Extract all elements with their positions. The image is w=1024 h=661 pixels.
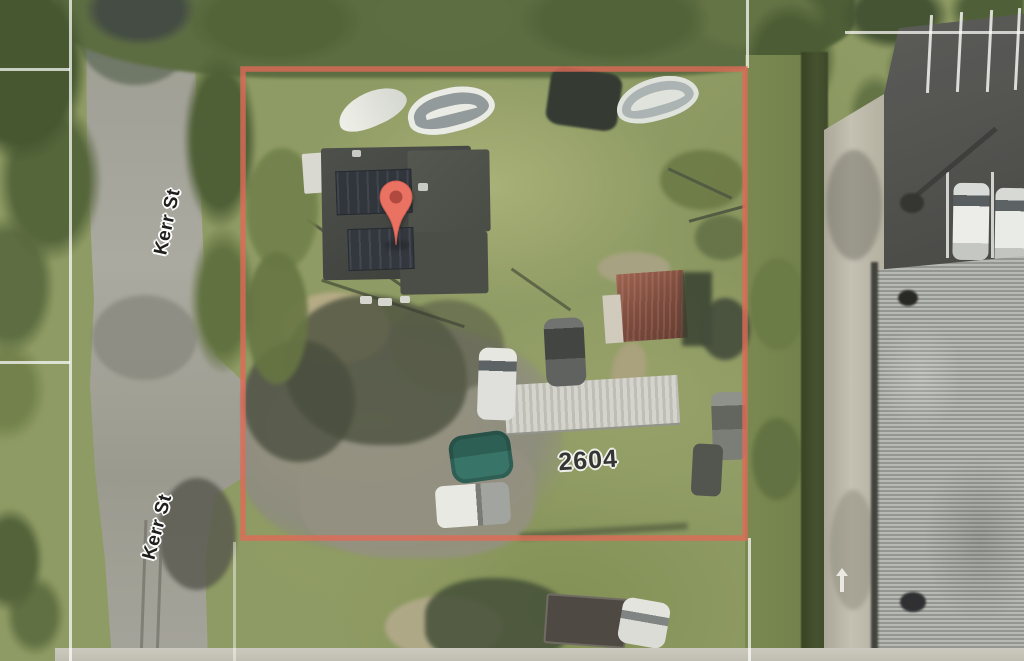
satellite-map[interactable]: 2604 Kerr St Kerr St [0, 0, 1024, 661]
property-boundary-rect [243, 69, 745, 538]
map-pin[interactable] [379, 180, 413, 250]
property-boundary [0, 0, 1024, 661]
map-pin-dot [390, 191, 403, 204]
